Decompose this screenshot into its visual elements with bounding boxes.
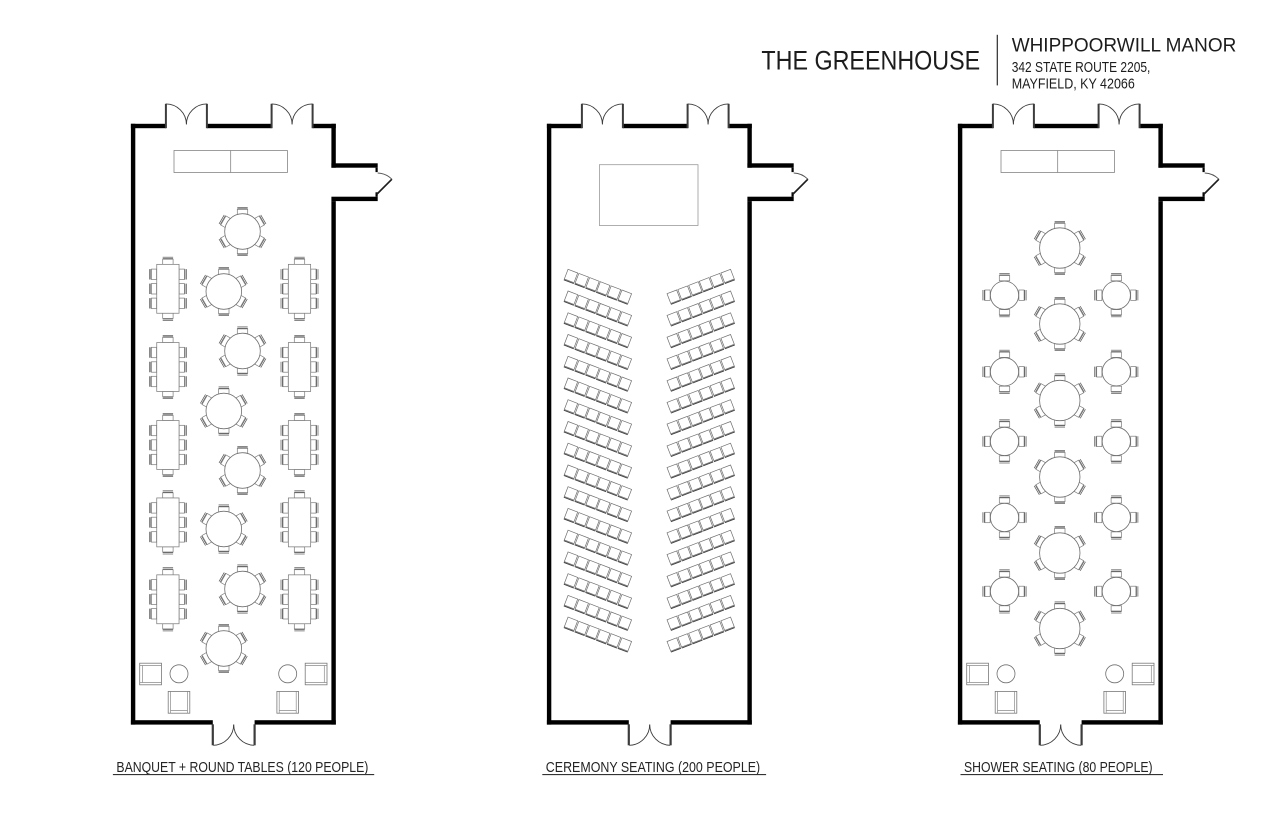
svg-text:THE GREENHOUSE: THE GREENHOUSE — [761, 45, 980, 75]
svg-text:SHOWER SEATING (80 PEOPLE): SHOWER SEATING (80 PEOPLE) — [964, 759, 1153, 776]
svg-text:CEREMONY SEATING (200 PEOPLE): CEREMONY SEATING (200 PEOPLE) — [546, 759, 760, 776]
svg-text:WHIPPOORWILL MANOR: WHIPPOORWILL MANOR — [1012, 35, 1237, 57]
svg-text:342 STATE ROUTE 2205,: 342 STATE ROUTE 2205, — [1012, 59, 1151, 76]
svg-text:MAYFIELD, KY 42066: MAYFIELD, KY 42066 — [1012, 76, 1135, 93]
svg-text:BANQUET + ROUND TABLES (120 PE: BANQUET + ROUND TABLES (120 PEOPLE) — [116, 759, 368, 776]
